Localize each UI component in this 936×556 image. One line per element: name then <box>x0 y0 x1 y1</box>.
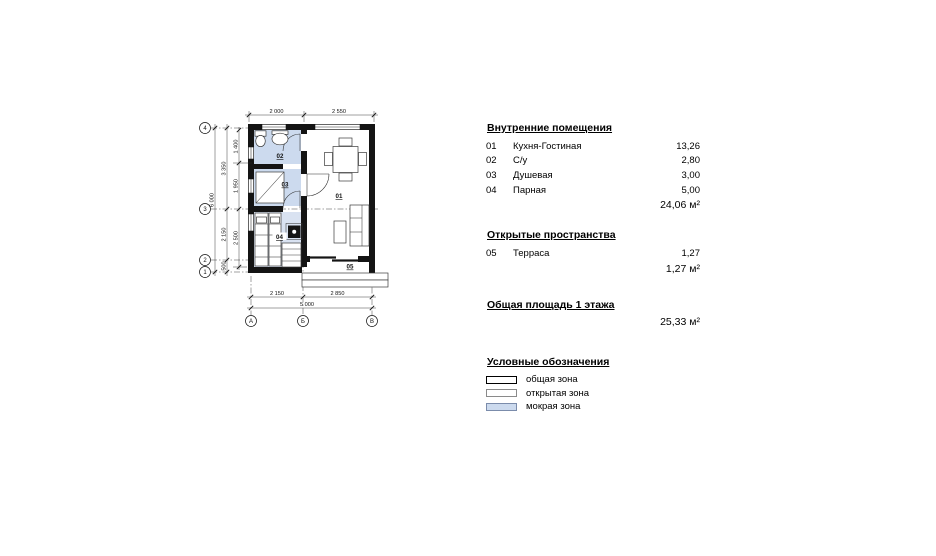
grand-total-title: Общая площадь 1 этажа <box>487 299 700 311</box>
table-row: 02 С/у 2,80 <box>486 154 700 169</box>
open-spaces-total: 1,27 м² <box>486 263 700 278</box>
room-number: 05 <box>486 248 513 259</box>
grand-total-section: Общая площадь 1 этажа 25,33 м² <box>486 299 700 331</box>
room-number: 03 <box>486 170 513 181</box>
shower-tray <box>256 172 284 203</box>
terrace-steps <box>302 273 388 287</box>
legend-section: Условные обозначения общая зона открытая… <box>486 356 700 414</box>
dim-inner-mid: 1 950 <box>233 179 239 193</box>
table-row: 01 Кухня-Гостиная 13,26 <box>486 139 700 154</box>
legend-swatch-wet-zone <box>486 403 517 411</box>
dim-inner-low: 2 500 <box>233 231 239 245</box>
table-row: 03 Душевая 3,00 <box>486 168 700 183</box>
table-row: 05 Терраса 1,27 <box>486 246 700 261</box>
floor-plan: 2 000 2 550 2 150 2 850 5 000 6 000 3 35… <box>190 96 405 336</box>
grid-bubble-v: В <box>370 319 374 325</box>
coffee-table <box>334 221 346 243</box>
legend-label: общая зона <box>526 374 578 385</box>
room-number: 04 <box>486 185 513 196</box>
room-name: Терраса <box>513 248 654 259</box>
page: 2 000 2 550 2 150 2 850 5 000 6 000 3 35… <box>0 0 936 556</box>
dim-left-bottom: 500 <box>221 261 227 270</box>
room-05-label: 05 <box>347 264 354 271</box>
room-area: 3,00 <box>654 170 700 181</box>
internal-rooms-section: Внутренние помещения 01 Кухня-Гостиная 1… <box>486 122 700 214</box>
room-name: С/у <box>513 155 654 166</box>
open-spaces-title: Открытые пространства <box>487 229 700 241</box>
dim-left-upper: 3 350 <box>221 162 227 176</box>
legend-item-open: открытая зона <box>486 386 700 400</box>
room-04-label: 04 <box>276 234 283 241</box>
dim-left-lower: 2 150 <box>221 228 227 242</box>
toilet <box>255 131 266 147</box>
legend-label: открытая зона <box>526 388 589 399</box>
sink <box>272 131 288 145</box>
dining-set <box>325 138 367 181</box>
legend-label: мокрая зона <box>526 401 580 412</box>
dim-top-left: 2 000 <box>270 109 284 115</box>
internal-rooms-title: Внутренние помещения <box>487 122 700 134</box>
dim-bottom-left: 2 150 <box>270 291 284 297</box>
room-area: 13,26 <box>654 141 700 152</box>
room-number: 02 <box>486 155 513 166</box>
open-spaces-section: Открытые пространства 05 Терраса 1,27 1,… <box>486 229 700 278</box>
legend-title: Условные обозначения <box>487 356 700 368</box>
legend-item-common: общая зона <box>486 373 700 387</box>
dim-bottom-right: 2 850 <box>331 291 345 297</box>
grid-bubble-a: А <box>249 319 253 325</box>
table-row: 04 Парная 5,00 <box>486 183 700 198</box>
room-name: Кухня-Гостиная <box>513 141 654 152</box>
legend-swatch-common-zone <box>486 376 517 384</box>
room-number: 01 <box>486 141 513 152</box>
dim-left-total: 6 000 <box>209 193 215 207</box>
room-area: 1,27 <box>654 248 700 259</box>
internal-rooms-total: 24,06 м² <box>486 199 700 214</box>
grand-total-value: 25,33 м² <box>486 316 700 331</box>
sliding-door <box>310 256 358 261</box>
dim-inner-top: 1 400 <box>233 140 239 154</box>
legend-swatch-open-zone <box>486 389 517 397</box>
area-schedule-panel: Внутренние помещения 01 Кухня-Гостиная 1… <box>486 122 700 413</box>
sofa <box>350 205 369 246</box>
room-name: Парная <box>513 185 654 196</box>
legend-item-wet: мокрая зона <box>486 400 700 414</box>
room-area: 2,80 <box>654 155 700 166</box>
room-name: Душевая <box>513 170 654 181</box>
grid-bubble-b: Б <box>301 319 305 325</box>
sauna-stove <box>286 224 302 240</box>
room-area: 5,00 <box>654 185 700 196</box>
dim-top-right: 2 550 <box>332 109 346 115</box>
room-02-label: 02 <box>277 153 284 160</box>
room-03-label: 03 <box>282 182 289 189</box>
dim-bottom-total: 5 000 <box>300 302 314 308</box>
room-01-label: 01 <box>336 193 343 200</box>
